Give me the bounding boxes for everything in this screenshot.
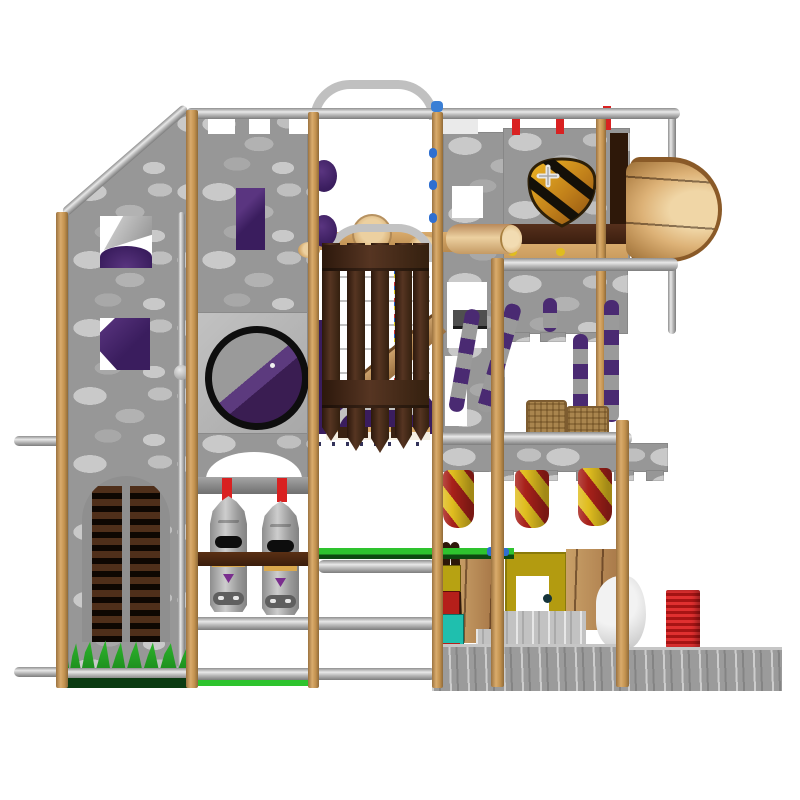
wall-window-upper (100, 216, 152, 268)
barrel-tunnel (626, 162, 718, 258)
portcullis-crossbar-top (322, 245, 429, 271)
wall-window (452, 186, 483, 218)
stone-step-block (500, 611, 586, 647)
stone-base-wall (628, 647, 782, 691)
wall-window-lower (100, 318, 150, 370)
portcullis-plank (413, 243, 429, 441)
bone-glyph (270, 599, 276, 603)
bag-row-lintel (437, 443, 668, 472)
log-end-cap (500, 225, 522, 253)
roller-column (92, 486, 122, 642)
portcullis-plank (347, 243, 365, 451)
deck-bolt (556, 248, 565, 256)
dark-green-skirt (62, 678, 190, 688)
bone-glyph (233, 596, 239, 600)
foam-block-teal (440, 614, 464, 645)
tower-deck-rail (496, 258, 678, 271)
striped-climb-pole (604, 300, 619, 422)
knight-scribble (270, 524, 292, 527)
knight-visor (215, 536, 242, 548)
wood-post (186, 110, 198, 688)
purple-window-pad (236, 188, 265, 250)
wood-post (56, 212, 68, 688)
wood-post (616, 420, 629, 687)
blue-cap (431, 101, 443, 112)
playground-render (0, 0, 800, 800)
brown-pad-rail (197, 552, 317, 566)
stone-tooth (646, 470, 664, 481)
stone-base-wall (432, 644, 630, 691)
bag-row-rail (432, 432, 632, 445)
wood-post (491, 258, 504, 687)
portcullis-crossbar-bottom (322, 380, 429, 408)
knight-scribble (218, 520, 240, 523)
blue-climb-hold (429, 148, 437, 158)
yellow-play-door (505, 552, 567, 615)
striped-punch-bag (578, 468, 612, 526)
portcullis-plank (395, 243, 412, 449)
green-pad-rail (316, 548, 514, 559)
shield-crest (524, 155, 600, 229)
mid-rail (318, 560, 436, 573)
roller-column (130, 486, 160, 642)
stitch-dots (318, 442, 424, 446)
glass-glint (270, 363, 275, 368)
green-floor-edge (193, 679, 309, 686)
slide-curl-shape (104, 216, 152, 250)
red-ribbed-block (666, 590, 700, 648)
wood-post (432, 112, 443, 688)
purple-wedge-pad (100, 318, 150, 370)
knight-gold-band (264, 566, 297, 571)
knight-hanger-beam (196, 477, 317, 494)
bone-glyph (218, 596, 224, 600)
wood-post (308, 112, 319, 688)
striped-punch-bag (515, 470, 549, 528)
shield-icon (524, 155, 600, 229)
stone-tooth (540, 332, 566, 342)
portcullis-plank (371, 243, 389, 453)
blue-climb-hold (429, 213, 437, 223)
porthole-window (205, 326, 309, 430)
portcullis-plank (322, 243, 340, 441)
knight-visor (267, 540, 294, 552)
bone-glyph (285, 599, 291, 603)
red-strap (277, 478, 287, 502)
log-beam (446, 224, 522, 254)
striped-punch-bag (443, 470, 474, 528)
purple-dome-pad (100, 246, 152, 268)
roller-squeeze-arch (82, 476, 170, 642)
steel-upright (178, 212, 185, 672)
door-knob (543, 594, 552, 603)
striped-pole-stub (543, 298, 557, 332)
blue-climb-hold (429, 180, 437, 190)
